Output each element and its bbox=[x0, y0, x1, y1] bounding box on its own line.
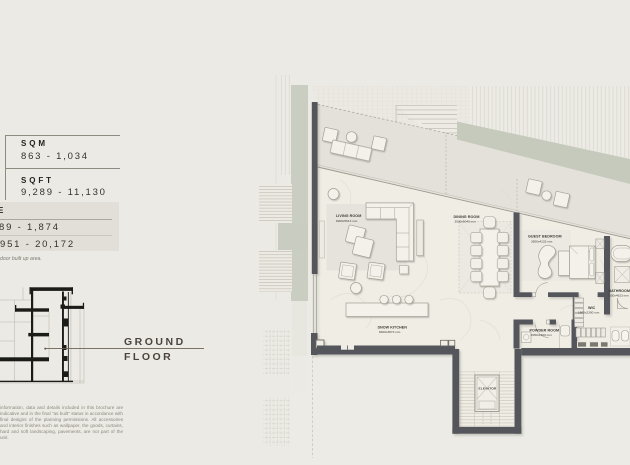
svg-text:1800x2300 mm: 1800x2300 mm bbox=[578, 311, 600, 315]
svg-text:SNOW KITCHEN: SNOW KITCHEN bbox=[378, 326, 408, 330]
svg-text:8200x5613 mm: 8200x5613 mm bbox=[336, 219, 358, 223]
svg-text:GUEST BEDROOM: GUEST BEDROOM bbox=[528, 235, 562, 239]
svg-text:BATHROOM: BATHROOM bbox=[609, 289, 630, 293]
svg-text:8400x3873 mm: 8400x3873 mm bbox=[379, 330, 401, 334]
svg-text:3500x5040 mm: 3500x5040 mm bbox=[455, 220, 477, 224]
svg-text:ELEVATOR: ELEVATOR bbox=[479, 387, 497, 391]
svg-text:POWDER ROOM: POWDER ROOM bbox=[530, 329, 560, 333]
svg-text:3500x4133 mm: 3500x4133 mm bbox=[531, 240, 553, 244]
svg-text:WIC: WIC bbox=[588, 306, 596, 310]
svg-text:LIVING ROOM: LIVING ROOM bbox=[336, 214, 361, 218]
svg-text:2100x4623 mm: 2100x4623 mm bbox=[608, 294, 630, 298]
svg-text:2950x1600 mm: 2950x1600 mm bbox=[531, 333, 553, 337]
svg-text:DINING ROOM: DINING ROOM bbox=[454, 215, 480, 219]
